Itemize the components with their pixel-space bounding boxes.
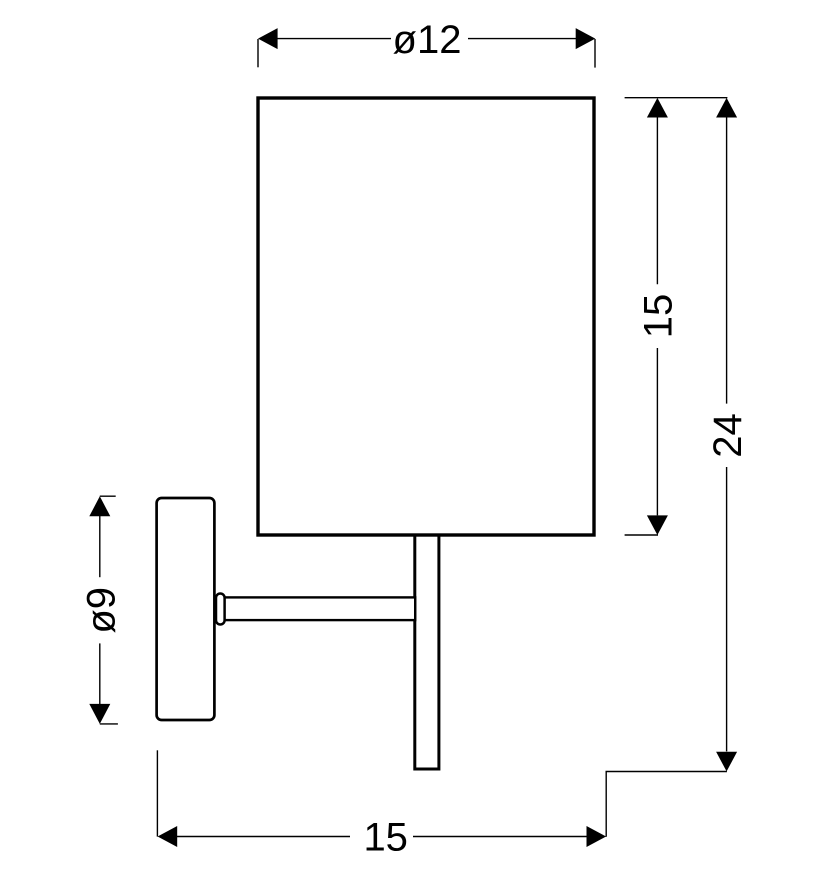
svg-text:ø12: ø12 [393,18,462,62]
svg-text:15: 15 [637,294,681,339]
svg-text:15: 15 [363,815,408,859]
svg-text:24: 24 [706,413,750,458]
svg-text:ø9: ø9 [80,587,124,634]
